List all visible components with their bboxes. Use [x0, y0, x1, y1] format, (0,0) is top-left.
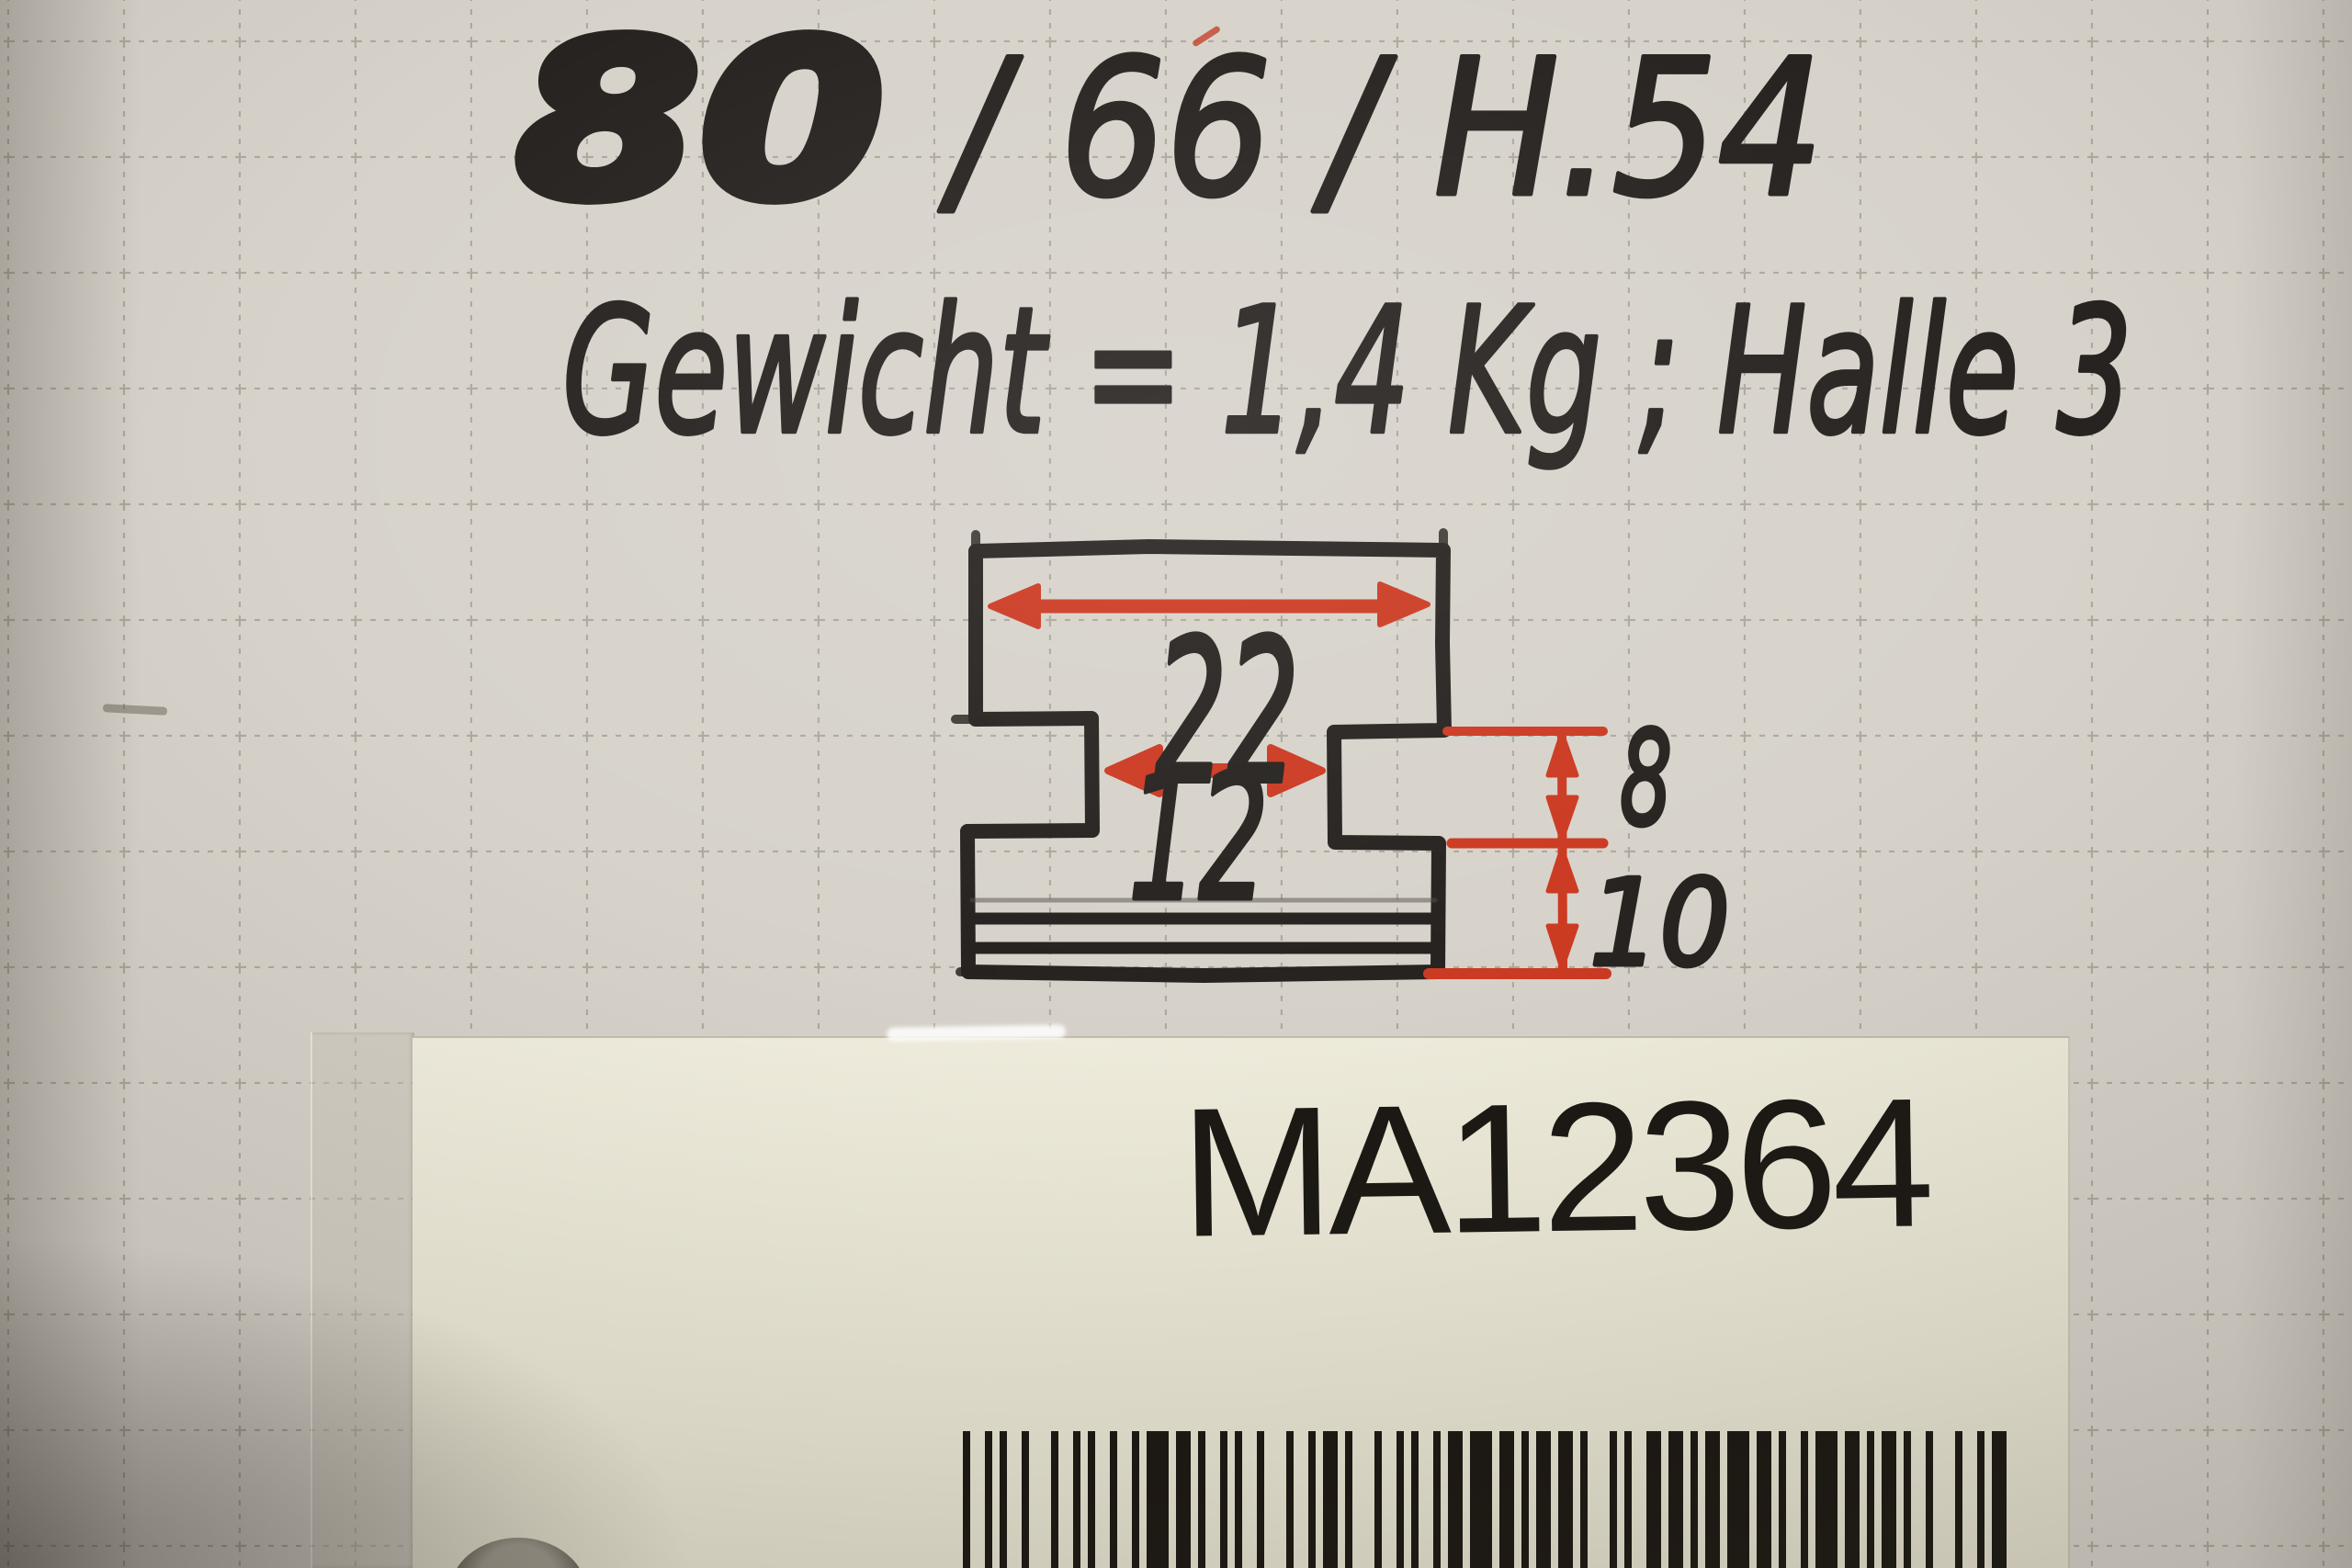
barcode-bar	[1257, 1431, 1264, 1568]
barcode-bar	[1779, 1431, 1786, 1568]
barcode-bar	[1992, 1431, 2007, 1568]
barcode-bar	[1235, 1431, 1242, 1568]
barcode-bar	[1536, 1431, 1551, 1568]
barcode-bar	[1521, 1431, 1529, 1568]
barcode-gap	[1551, 1431, 1558, 1568]
barcode-gap	[1227, 1431, 1235, 1568]
profile-sketch: 22 12 8 10	[873, 514, 1837, 1029]
barcode-gap	[1860, 1431, 1867, 1568]
barcode-bar	[1088, 1431, 1095, 1568]
barcode-gap	[1698, 1431, 1705, 1568]
barcode-bar	[1022, 1431, 1029, 1568]
barcode	[963, 1431, 2007, 1568]
barcode-bar	[1904, 1431, 1911, 1568]
barcode-gap	[1632, 1431, 1646, 1568]
barcode-gap	[1007, 1431, 1022, 1568]
barcode-gap	[1720, 1431, 1727, 1568]
barcode-bar	[1867, 1431, 1874, 1568]
handwritten-header: 80 / 66 / H.54 Gewicht = 1,4 Kg ; Halle …	[0, 0, 2352, 514]
barcode-gap	[1294, 1431, 1308, 1568]
barcode-gap	[1771, 1431, 1779, 1568]
barcode-gap	[1911, 1431, 1926, 1568]
barcode-bar	[1176, 1431, 1191, 1568]
barcode-gap	[1874, 1431, 1882, 1568]
dimension-vertical-8-10	[1429, 731, 1606, 974]
barcode-gap	[1573, 1431, 1580, 1568]
plastic-sleeve-edge	[311, 1032, 414, 1568]
barcode-gap	[1264, 1431, 1286, 1568]
barcode-bar	[1580, 1431, 1588, 1568]
barcode-bar	[1845, 1431, 1860, 1568]
barcode-bar	[1411, 1431, 1419, 1568]
part-number-rest: / 66 / H.54	[938, 20, 1824, 239]
barcode-bar	[1815, 1431, 1837, 1568]
part-number-bold: 80	[516, 0, 884, 247]
barcode-gap	[1441, 1431, 1448, 1568]
weight-line: Gewicht = 1,4 Kg ; Halle 3	[562, 270, 2132, 473]
barcode-gap	[1169, 1431, 1176, 1568]
barcode-bar	[1147, 1431, 1169, 1568]
barcode-bar	[1926, 1431, 1933, 1568]
barcode-bar	[1323, 1431, 1338, 1568]
barcode-gap	[1896, 1431, 1904, 1568]
barcode-gap	[1139, 1431, 1147, 1568]
photo-of-handwritten-note: 80 / 66 / H.54 Gewicht = 1,4 Kg ; Halle …	[0, 0, 2352, 1568]
barcode-gap	[1095, 1431, 1110, 1568]
barcode-gap	[1514, 1431, 1521, 1568]
barcode-gap	[1492, 1431, 1499, 1568]
barcode-bar	[1000, 1431, 1007, 1568]
barcode-gap	[970, 1431, 985, 1568]
barcode-gap	[1529, 1431, 1536, 1568]
barcode-gap	[1962, 1431, 1977, 1568]
barcode-gap	[1661, 1431, 1668, 1568]
barcode-bar	[1396, 1431, 1404, 1568]
barcode-bar	[1757, 1431, 1771, 1568]
barcode-gap	[1984, 1431, 1992, 1568]
barcode-bar	[1132, 1431, 1139, 1568]
barcode-gap	[1463, 1431, 1470, 1568]
barcode-bar	[1882, 1431, 1896, 1568]
label-code-text: MA12364	[1180, 1071, 1930, 1265]
barcode-bar	[1705, 1431, 1720, 1568]
barcode-gap	[1588, 1431, 1610, 1568]
barcode-gap	[1808, 1431, 1815, 1568]
barcode-gap	[1837, 1431, 1845, 1568]
inventory-label-card: MA12364	[413, 1036, 2070, 1568]
barcode-bar	[1198, 1431, 1205, 1568]
dim-label-10: 10	[1589, 853, 1730, 993]
barcode-gap	[1338, 1431, 1345, 1568]
barcode-gap	[1617, 1431, 1624, 1568]
barcode-gap	[2007, 1431, 2007, 1568]
barcode-bar	[963, 1431, 970, 1568]
barcode-bar	[985, 1431, 992, 1568]
barcode-gap	[1683, 1431, 1690, 1568]
barcode-gap	[1749, 1431, 1757, 1568]
barcode-bar	[1955, 1431, 1962, 1568]
dim-label-12: 12	[1128, 737, 1269, 940]
barcode-bar	[1624, 1431, 1632, 1568]
barcode-bar	[1433, 1431, 1441, 1568]
barcode-bar	[1073, 1431, 1080, 1568]
barcode-gap	[1029, 1431, 1051, 1568]
barcode-bar	[1610, 1431, 1617, 1568]
punch-hole	[449, 1538, 587, 1568]
barcode-bar	[1646, 1431, 1661, 1568]
barcode-gap	[1117, 1431, 1132, 1568]
barcode-gap	[1404, 1431, 1411, 1568]
barcode-gap	[1419, 1431, 1433, 1568]
barcode-bar	[1470, 1431, 1492, 1568]
barcode-gap	[1080, 1431, 1088, 1568]
barcode-bar	[1690, 1431, 1698, 1568]
barcode-gap	[1786, 1431, 1801, 1568]
barcode-gap	[1058, 1431, 1073, 1568]
barcode-gap	[1352, 1431, 1374, 1568]
barcode-bar	[1448, 1431, 1463, 1568]
barcode-bar	[1499, 1431, 1514, 1568]
barcode-bar	[1977, 1431, 1984, 1568]
barcode-bar	[1220, 1431, 1227, 1568]
barcode-bar	[1558, 1431, 1573, 1568]
barcode-gap	[1191, 1431, 1198, 1568]
barcode-bar	[1801, 1431, 1808, 1568]
barcode-bar	[1374, 1431, 1382, 1568]
barcode-bar	[1345, 1431, 1352, 1568]
barcode-gap	[1933, 1431, 1955, 1568]
barcode-gap	[1316, 1431, 1323, 1568]
barcode-bar	[1110, 1431, 1117, 1568]
barcode-bar	[1051, 1431, 1058, 1568]
barcode-bar	[1308, 1431, 1316, 1568]
barcode-gap	[1382, 1431, 1396, 1568]
dim-label-8: 8	[1620, 704, 1672, 855]
barcode-gap	[992, 1431, 1000, 1568]
barcode-bar	[1668, 1431, 1683, 1568]
barcode-gap	[1205, 1431, 1220, 1568]
barcode-gap	[1242, 1431, 1257, 1568]
barcode-bar	[1727, 1431, 1749, 1568]
barcode-bar	[1286, 1431, 1294, 1568]
